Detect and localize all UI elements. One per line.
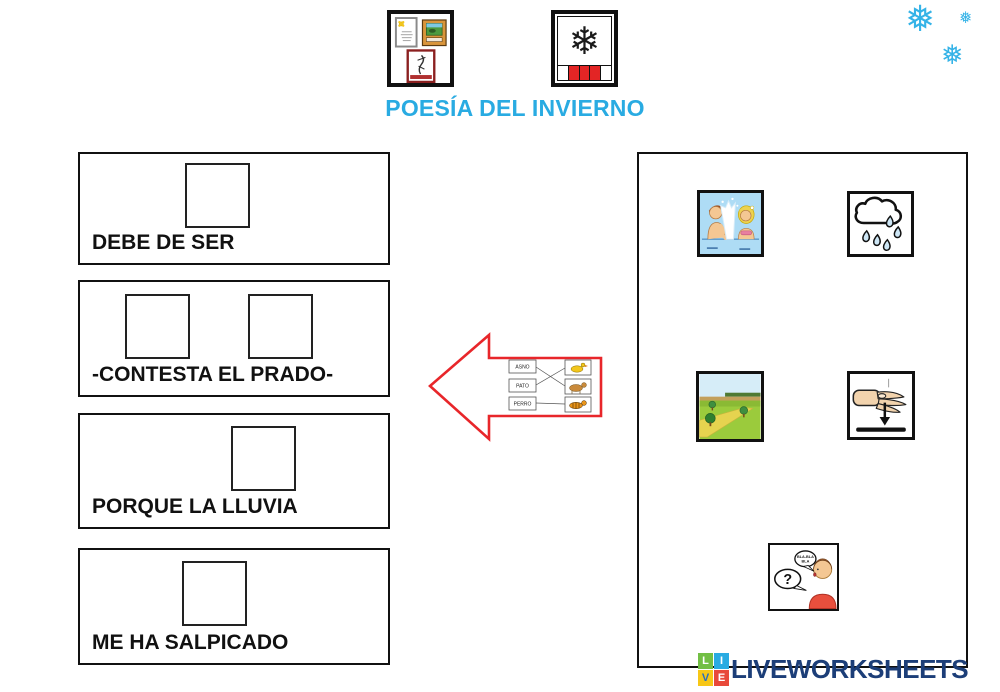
snowflake-icon: ❅ xyxy=(959,10,972,26)
card-contestar[interactable]: BLA-BLA BLA ? xyxy=(768,543,839,611)
card-lluvia[interactable] xyxy=(847,191,914,257)
logo-letter: L xyxy=(698,653,713,669)
liveworksheets-logo[interactable]: L I V E LIVEWORKSHEETS xyxy=(698,651,968,687)
phrase-label: DEBE DE SER xyxy=(92,231,234,255)
bubble-bla-text: BLA xyxy=(801,560,809,564)
drop-zone[interactable] xyxy=(248,294,313,359)
mini-word: PERRO xyxy=(514,402,532,408)
phrase-label: ME HA SALPICADO xyxy=(92,631,288,655)
drop-zone[interactable] xyxy=(185,163,250,228)
card-ser[interactable] xyxy=(847,371,915,440)
snowflake-glyph: ❄ xyxy=(558,19,611,63)
drop-zone[interactable] xyxy=(125,294,190,359)
match-exercise-pictogram: ASNO PATO PERRO xyxy=(508,358,601,414)
card-prado[interactable] xyxy=(696,371,764,442)
bubble-bla-text: BLA-BLA xyxy=(797,555,814,559)
phrase-box-contesta-el-prado: -CONTESTA EL PRADO- xyxy=(78,280,390,397)
snowflake-icon: ❅ xyxy=(905,2,935,38)
liveworksheets-wordmark: LIVEWORKSHEETS xyxy=(731,651,968,687)
card-salpicar[interactable] xyxy=(697,190,764,257)
worksheet-page: ❄ POESÍA DEL INVIERNO ❅ ❅ ❅ DEBE DE SER … xyxy=(0,0,1000,692)
bubble-question-text: ? xyxy=(783,572,792,588)
mini-word: ASNO xyxy=(515,365,529,371)
logo-letter: V xyxy=(698,670,713,686)
phrase-box-me-ha-salpicado: ME HA SALPICADO xyxy=(78,548,390,665)
phrase-label: PORQUE LA LLUVIA xyxy=(92,495,298,519)
season-calendar-strip xyxy=(558,65,611,80)
phrase-box-porque-la-lluvia: PORQUE LA LLUVIA xyxy=(78,413,390,529)
phrase-label: -CONTESTA EL PRADO- xyxy=(92,363,333,387)
phrase-box-debe-de-ser: DEBE DE SER xyxy=(78,152,390,265)
snowflake-icon: ❅ xyxy=(941,42,964,69)
drop-zone[interactable] xyxy=(182,561,247,626)
mini-word: PATO xyxy=(516,384,529,390)
page-title: POESÍA DEL INVIERNO xyxy=(355,95,675,122)
drop-zone[interactable] xyxy=(231,426,296,491)
liveworksheets-logo-squares: L I V E xyxy=(698,653,729,686)
logo-letter: E xyxy=(714,670,729,686)
invierno-icon: ❄ xyxy=(551,10,618,87)
logo-letter: I xyxy=(714,653,729,669)
poesia-icon xyxy=(387,10,454,87)
